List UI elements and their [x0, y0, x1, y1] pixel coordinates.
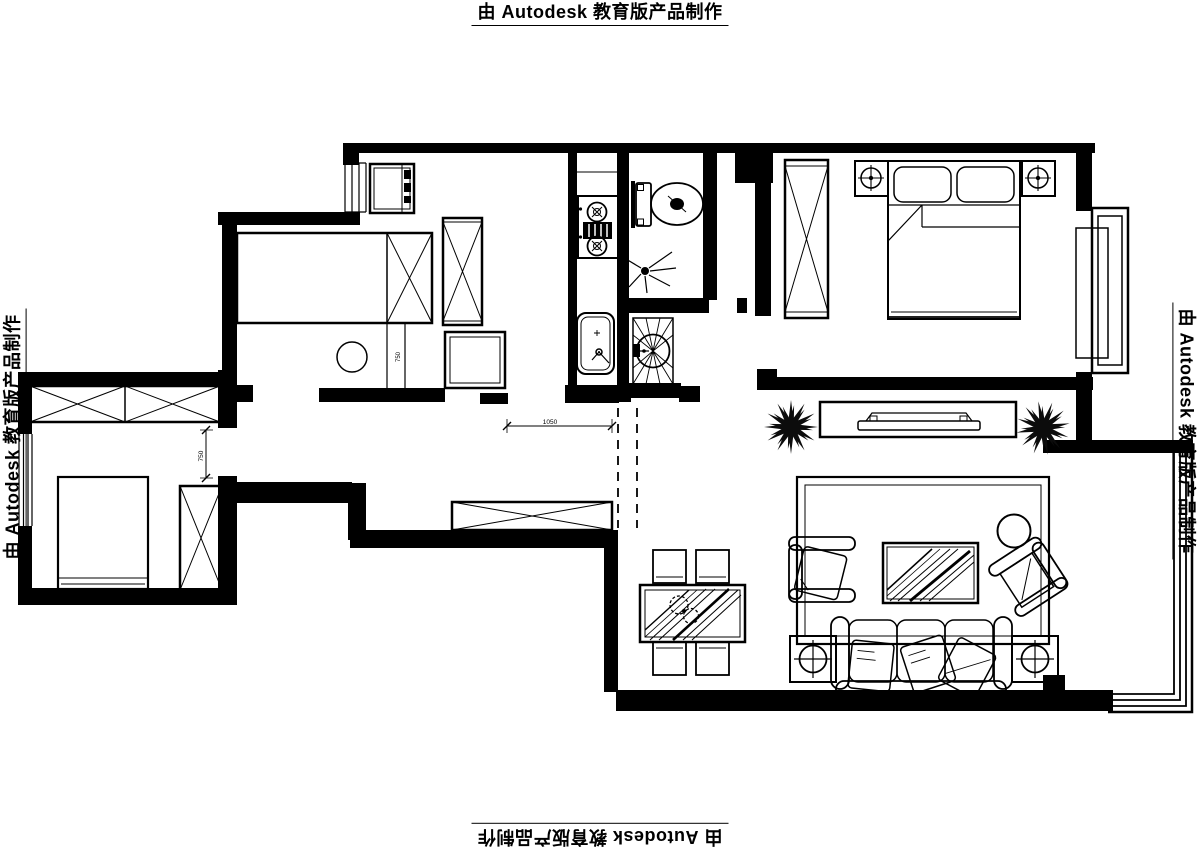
bathroom	[626, 181, 703, 384]
double-bed	[888, 161, 1020, 319]
balcony-window	[1108, 447, 1192, 712]
study-window	[345, 163, 366, 212]
dim-bedroom: 750	[198, 450, 205, 461]
master-bedroom	[785, 160, 1055, 319]
dining-chair	[696, 550, 729, 583]
nightstand-lamp	[855, 161, 888, 196]
gas-stove	[578, 196, 618, 258]
dimension-line-horizontal: 1050	[503, 419, 616, 433]
dining-area	[640, 550, 745, 675]
dim-study: 750	[396, 351, 402, 362]
platform-step: 750	[387, 323, 405, 388]
tv-cabinet	[820, 402, 1016, 437]
floor-plan-sheet: 由 Autodesk 教育版产品制作 由 Autodesk 教育版产品制作 由 …	[0, 0, 1200, 848]
kitchen	[577, 172, 618, 374]
toilet	[631, 181, 703, 228]
wardrobe	[30, 386, 220, 422]
dining-chair	[653, 550, 686, 583]
sofa	[831, 617, 1012, 699]
left-bedroom-window	[19, 434, 32, 526]
throw-pillow	[848, 640, 895, 692]
washbasin	[633, 318, 673, 384]
desk	[445, 332, 505, 388]
living-room	[789, 477, 1070, 699]
tv-wall	[764, 393, 1078, 462]
entry-opening-dashed	[618, 408, 637, 528]
wardrobe	[785, 160, 828, 318]
dining-chair	[696, 642, 729, 675]
stool	[337, 342, 367, 372]
potted-plant	[764, 400, 818, 454]
dim-hall: 1050	[543, 419, 558, 426]
study-room: 750	[237, 164, 505, 388]
armchair	[987, 535, 1070, 618]
left-bedroom: 750	[30, 386, 222, 590]
floor-plan-drawing: 750	[0, 0, 1200, 848]
nightstand-lamp	[1022, 161, 1055, 196]
fridge	[370, 164, 414, 213]
wardrobe	[180, 486, 222, 590]
kitchen-sink	[577, 313, 614, 374]
armchair	[789, 537, 855, 602]
single-bed	[58, 477, 148, 589]
dining-chair	[653, 642, 686, 675]
shower-head-icon	[626, 252, 676, 293]
bay-window	[1076, 208, 1128, 373]
throw-pillow	[937, 636, 997, 698]
dimension-line-vertical: 750	[198, 426, 213, 482]
wardrobe	[443, 218, 482, 325]
hallway: 1050	[452, 408, 637, 530]
tv	[858, 413, 980, 430]
shoe-cabinet	[452, 502, 612, 530]
platform-bed	[237, 233, 432, 323]
dining-table	[640, 585, 745, 642]
coffee-table	[883, 543, 978, 603]
